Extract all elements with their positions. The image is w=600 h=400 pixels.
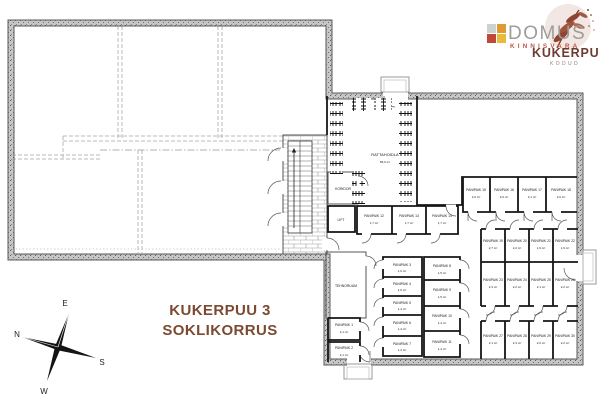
- logo-square-red: [487, 34, 496, 43]
- room-area: 1,6 m²: [398, 288, 407, 292]
- room-label: PANIPAIK 13: [399, 214, 419, 218]
- east-porch: [583, 250, 596, 284]
- compass-north-label: N: [14, 330, 20, 339]
- room-area: 2,1 m²: [528, 195, 537, 199]
- room-label: PANIPAIK 14: [432, 214, 452, 218]
- room-label: PANIPAIK 24: [507, 278, 527, 282]
- room-area: 1,7 m²: [370, 221, 379, 225]
- room-labels: RATTAHOIDLA 86,0 m² KORIDOR LIFT TEHNORU…: [335, 152, 575, 357]
- floorplan-page: { "logo": { "brand": "DOMUS", "brand_sub…: [0, 0, 600, 400]
- room-label: PANIPAIK 23: [483, 278, 503, 282]
- room-label: PANIPAIK 30: [555, 334, 575, 338]
- room-label: PANIPAIK 8: [433, 264, 451, 268]
- room-label: PANIPAIK 27: [483, 334, 503, 338]
- room-area: 2,2 m²: [513, 246, 522, 250]
- logo-square-orange: [497, 24, 506, 33]
- room-label: PANIPAIK 20: [507, 239, 527, 243]
- room-area: 2,1 m²: [489, 341, 498, 345]
- compass-rose: E N S W: [14, 299, 105, 396]
- room-label: PANIPAIK 6: [393, 321, 411, 325]
- logo-square-yellow: [497, 34, 506, 43]
- room-area: 1,6 m²: [398, 269, 407, 273]
- logo-square-pale: [487, 24, 496, 33]
- room-label: PANIPAIK 22: [555, 239, 575, 243]
- room-label: PANIPAIK 11: [432, 340, 452, 344]
- room-label: PANIPAIK 19: [483, 239, 503, 243]
- room-area: 86,0 m²: [380, 160, 390, 164]
- room-area: 2,6 m²: [557, 195, 566, 199]
- logo-brand-text: DOMUS: [508, 23, 586, 45]
- room-label: PANIPAIK 18: [551, 188, 571, 192]
- room-area: 1,4 m²: [438, 321, 447, 325]
- compass-south-label: S: [99, 358, 104, 367]
- floor-title: KUKERPUU 3 SOKLIKORRUS: [120, 301, 320, 341]
- floor-title-line2: SOKLIKORRUS: [120, 321, 320, 341]
- room-area: 1,9 m²: [537, 246, 546, 250]
- brand-logo: DOMUS KINNISVARA KUKERPUU KODUD: [485, 2, 597, 70]
- room-area: 1,5 m²: [438, 271, 447, 275]
- logo-project-subtext: KODUD: [550, 61, 580, 67]
- room-label: KORIDOR: [335, 187, 351, 191]
- room-area: 2,1 m²: [340, 353, 349, 357]
- room-label: PANIPAIK 12: [364, 214, 384, 218]
- room-area: 1,4 m²: [398, 307, 407, 311]
- room-area: 1,4 m²: [438, 347, 447, 351]
- room-area: 1,7 m²: [438, 221, 447, 225]
- room-area: 2,2 m²: [561, 285, 570, 289]
- room-label: PANIPAIK 21: [531, 239, 551, 243]
- room-area: 1,9 m²: [561, 246, 570, 250]
- left-hall-dashed-lines: [12, 26, 283, 253]
- room-label: PANIPAIK 16: [494, 188, 514, 192]
- north-porch: [381, 77, 409, 92]
- room-area: 2,3 m²: [489, 285, 498, 289]
- room-area: 2,3 m²: [513, 341, 522, 345]
- room-label: PANIPAIK 25: [531, 278, 551, 282]
- compass-east-label: E: [62, 299, 67, 308]
- room-label: PANIPAIK 28: [507, 334, 527, 338]
- room-label: PANIPAIK 2: [335, 346, 353, 350]
- room-area: 1,4 m²: [398, 327, 407, 331]
- room-label: PANIPAIK 4: [393, 282, 411, 286]
- room-area: 1,4 m²: [398, 348, 407, 352]
- room-label: PANIPAIK 10: [432, 314, 452, 318]
- room-label: TEHNORUUM: [335, 284, 357, 288]
- room-area: 2,6 m²: [500, 195, 509, 199]
- room-area: 2,1 m²: [340, 330, 349, 334]
- room-label: PANIPAIK 17: [522, 188, 542, 192]
- floor-title-line1: KUKERPUU 3: [120, 301, 320, 321]
- room-area: 2,2 m²: [561, 341, 570, 345]
- room-area: 2,2 m²: [513, 285, 522, 289]
- room-label: PANIPAIK 29: [531, 334, 551, 338]
- compass-west-label: W: [40, 387, 48, 396]
- room-label: PANIPAIK 1: [335, 323, 353, 327]
- logo-project-text: KUKERPUU: [532, 46, 600, 60]
- room-label: PANIPAIK 7: [393, 342, 411, 346]
- room-area: 1,5 m²: [438, 295, 447, 299]
- room-area: 1,7 m²: [405, 221, 414, 225]
- room-label: PANIPAIK 15: [466, 188, 486, 192]
- room-label: PANIPAIK 3: [393, 263, 411, 267]
- room-label: PANIPAIK 9: [433, 288, 451, 292]
- room-area: 2,0 m²: [537, 341, 546, 345]
- room-label: LIFT: [338, 218, 345, 222]
- room-label: RATTAHOIDLA: [371, 152, 399, 157]
- room-label: PANIPAIK 26: [555, 278, 575, 282]
- room-area: 2,1 m²: [537, 285, 546, 289]
- room-area: 2,7 m²: [489, 246, 498, 250]
- room-label: PANIPAIK 5: [393, 301, 411, 305]
- room-area: 2,6 m²: [472, 195, 481, 199]
